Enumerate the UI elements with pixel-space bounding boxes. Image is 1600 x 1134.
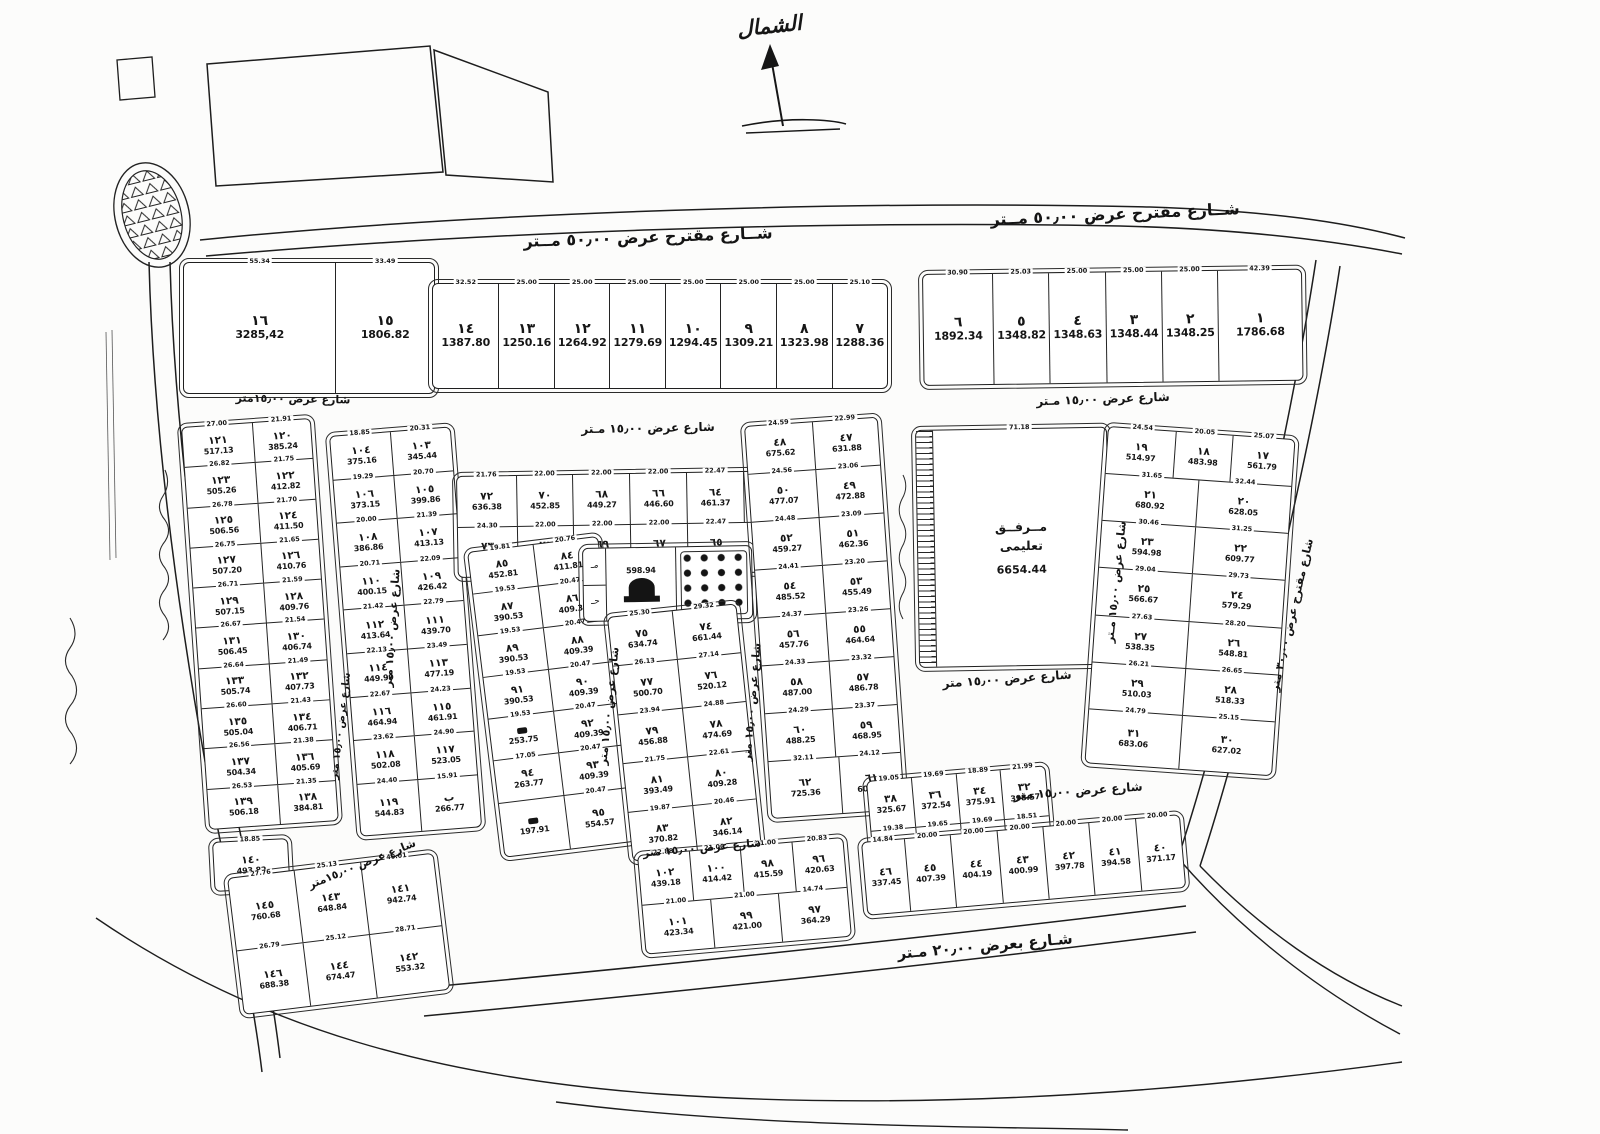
street-label: شارع عرض ١٥٫٠٠ متر [942, 668, 1072, 691]
plot-area: 1294.45 [669, 337, 718, 350]
plot-cell: 24.40١١٩544.83 [357, 780, 420, 836]
plot-number: ١ [1256, 312, 1265, 327]
plot-area: 364.29 [800, 914, 830, 926]
plot-area: 538.35 [1125, 641, 1155, 652]
dimension-label: 26.79 [257, 941, 282, 950]
dimension-label: 20.76 [552, 534, 577, 543]
street-label: شــارع مقترح عرض ٥٠٫٠٠ مــتر [523, 223, 773, 251]
scr-cell: مـحـ [583, 549, 606, 621]
dimension-label: 26.13 [632, 657, 657, 666]
dimension-label: 25.00 [681, 279, 706, 286]
plot-area: 384.81 [293, 802, 323, 813]
dimension-label: 20.70 [411, 467, 436, 475]
plot-cell: 25.00٨1323.98 [776, 284, 832, 388]
dimension-label: 21.76 [474, 471, 499, 478]
dimension-label: 20.00 [1053, 819, 1078, 828]
dimension-label: 26.82 [207, 460, 232, 468]
plot-cell: 21.00٩٩421.00 [710, 893, 783, 947]
dimension-label: 23.37 [852, 701, 877, 709]
plot-area: 1264.92 [558, 337, 607, 350]
dimension-label: 19.53 [503, 668, 528, 677]
plot-area: 411.50 [273, 521, 303, 532]
dimension-label: 19.38 [881, 823, 906, 832]
plot-cell: 26.79١٤٦688.38 [237, 944, 310, 1014]
plot-area: 409.39 [579, 769, 610, 782]
plot-number: ٢ [1186, 313, 1195, 328]
plot-area: 661.44 [692, 631, 722, 643]
dimension-label: 19.69 [921, 770, 946, 779]
plot-area: 544.83 [374, 808, 404, 819]
plot-area: 502.08 [371, 760, 401, 771]
street-label: شارع عرض ١٥٫٠٠ مـتر [581, 420, 715, 436]
dimension-label: 20.47 [568, 660, 593, 669]
plot-area: 510.03 [1121, 688, 1151, 699]
plot-area: 423.34 [664, 926, 694, 938]
plot-area: 373.15 [350, 499, 380, 510]
plot-cell: 19.05٣٨325.67 [867, 778, 915, 830]
plot-area: 505.74 [220, 686, 250, 697]
plot-area: 506.45 [218, 646, 248, 657]
plot-area: 506.18 [229, 807, 259, 818]
plot-area: 390.53 [503, 694, 534, 707]
street-label: شارع عرض ١٥٫٠٠متر [236, 391, 351, 406]
plot-cell: 21.35١٣٨384.81 [277, 781, 338, 824]
plot-area: 1323.98 [780, 337, 829, 350]
dimension-label: 20.31 [407, 424, 432, 432]
plot-number: ٨ [800, 322, 809, 337]
dimension-label: 33.49 [373, 258, 398, 265]
dimension-label: 19.65 [925, 819, 950, 828]
dimension-label: 18.89 [965, 766, 990, 775]
dimension-label: 18.51 [1014, 812, 1039, 821]
plot-area: 634.74 [628, 638, 658, 650]
plot-area: 375.16 [347, 456, 377, 467]
plot-number: ٢٢ [1234, 543, 1248, 555]
plot-number: ٢٤ [1230, 590, 1244, 602]
plot-area: 426.42 [417, 581, 447, 592]
plot-area: 394.58 [1101, 856, 1131, 868]
plot-area: 477.07 [769, 496, 799, 507]
block-cm: 25.30٧٥634.7429.32٧٤661.4426.13٧٧500.702… [607, 603, 762, 861]
mosque-area: 598.94 [626, 566, 656, 576]
plot-cell: 22.00٧٠452.85 [516, 475, 574, 525]
plot-area: 405.69 [290, 762, 320, 773]
dimension-label: 24.30 [475, 522, 500, 529]
plot-number: ٢٣ [1140, 537, 1154, 549]
plot-cell: 22.47٦٤461.37 [686, 472, 744, 522]
plot-cell: 14.74٩٧364.29 [778, 887, 851, 941]
plot-number: ٢٧ [1134, 631, 1148, 643]
dimension-label: 19.69 [970, 815, 995, 824]
dimension-label: 26.75 [213, 540, 238, 548]
plot-area: 457.76 [779, 639, 809, 650]
plot-cell: 26.53١٣٩506.18 [207, 785, 279, 829]
dimension-label: 25.30 [627, 608, 652, 617]
dimension-label: 20.47 [573, 702, 598, 711]
dimension-label: 24.40 [374, 776, 399, 784]
dimension-label: 22.47 [704, 518, 729, 525]
plot-area: 523.05 [431, 755, 461, 766]
plot-area: 400.15 [357, 586, 387, 597]
plot-number: ٥ [1017, 315, 1026, 330]
dimension-label: 23.20 [842, 558, 867, 566]
handwritten-mark: حـ [584, 584, 607, 621]
plot-number: ١٧ [1256, 450, 1270, 462]
plot-area: 452.85 [530, 501, 560, 511]
plot-area: 409.39 [563, 644, 594, 657]
plot-area: 409.39 [568, 686, 599, 699]
plot-area: 456.88 [638, 735, 668, 747]
plot-area: 631.88 [832, 443, 862, 454]
dimension-label: 22.79 [421, 598, 446, 606]
dimension-label: 25.10 [847, 279, 872, 286]
plot-cell: 20.00٤٢397.78 [1042, 823, 1095, 899]
dimension-label: 30.46 [1136, 519, 1161, 527]
dimension-label: 32.44 [1233, 478, 1258, 486]
plot-area: 1250.16 [502, 337, 551, 350]
plot-number: ب [443, 793, 454, 805]
mosque-icon [623, 577, 659, 602]
plot-area: 390.53 [493, 610, 524, 623]
dimension-label: 26.64 [221, 661, 246, 669]
plot-cell: 25.12١٤٤674.47 [302, 935, 376, 1005]
dimension-label: 20.00 [354, 516, 379, 524]
plot-area: 461.91 [428, 712, 458, 723]
plot-area: 399.86 [410, 494, 440, 505]
plot-area: 514.97 [1125, 452, 1155, 463]
dimension-label: 24.56 [769, 467, 794, 475]
block-rc: 24.59٤٨675.6222.99٤٧631.8824.56٥٠477.072… [744, 417, 905, 819]
dimension-label: 18.85 [237, 835, 262, 843]
plot-area: 390.53 [498, 652, 529, 665]
dimension-label: 26.65 [1220, 666, 1245, 674]
plot-cell: 33.49١٥1806.82 [335, 263, 434, 393]
block-lc: 27.00١٢١517.1321.91١٢٠385.2426.82١٢٣505.… [181, 418, 339, 830]
plot-area: 375.91 [965, 796, 995, 808]
plot-number: ٣ [1130, 313, 1139, 328]
dimension-label: 14.74 [800, 884, 825, 893]
plot-number: ٢١ [1144, 490, 1158, 502]
plot-number: ٢٩ [1131, 678, 1145, 690]
plot-area: 507.20 [212, 566, 242, 577]
plot-cell: 25.00٣1348.44 [1105, 272, 1163, 383]
plot-area: 397.78 [1054, 861, 1084, 873]
plot-area: 518.33 [1215, 695, 1245, 706]
plot-area: 472.88 [835, 491, 865, 502]
dimension-label: 23.32 [849, 653, 874, 661]
dimension-label: 25.12 [323, 933, 348, 942]
block-tl: 55.34١٦3285,4233.49١٥1806.82 [183, 262, 435, 394]
plot-number: ٤ [1073, 314, 1082, 329]
plot-number: ١٤ [457, 322, 474, 337]
dimension-label: 32.52 [453, 279, 478, 286]
plot-area: 439.70 [421, 625, 451, 636]
dimension-label: 28.20 [1223, 619, 1248, 627]
dimension-label: 22.00 [532, 470, 557, 477]
dimension-label: 24.79 [1123, 707, 1148, 715]
plot-area: 411.81 [553, 560, 584, 573]
dimension-label: 19.05 [876, 774, 901, 783]
dimension-label: 28.71 [393, 924, 418, 933]
dimension-label: 21.75 [642, 755, 667, 764]
plot-area: 609.77 [1225, 554, 1255, 565]
plot-area: 325.67 [876, 804, 906, 816]
parcel-blocks-layer: 55.34١٦3285,4233.49١٥1806.8232.52١٤1387.… [0, 0, 1600, 1134]
plot-area: 459.27 [772, 544, 802, 555]
dimension-label: 21.39 [414, 511, 439, 519]
plot-area: 412.82 [271, 481, 301, 492]
dimension-label: 20.00 [1100, 815, 1125, 824]
dimension-label: 23.09 [839, 510, 864, 518]
dimension-label: 26.67 [218, 621, 243, 629]
plot-number: ١١ [629, 322, 646, 337]
dimension-label: 27.76 [248, 868, 273, 877]
utility-icon [528, 817, 539, 824]
dimension-label: 22.61 [706, 748, 731, 757]
plot-area: 505.04 [223, 726, 253, 737]
plot-cell: 20.05١٨483.98 [1173, 432, 1232, 482]
plot-area: 386.86 [354, 543, 384, 554]
plot-area: 409.76 [279, 601, 309, 612]
dimension-label: 25.00 [1121, 267, 1146, 274]
plot-cell: 24.79٣١683.06 [1085, 709, 1181, 768]
plot-area: 500.70 [633, 687, 663, 699]
plot-area: 346.14 [712, 826, 742, 838]
plot-number: ٧ [856, 322, 865, 337]
dimension-label: 21.91 [269, 415, 294, 423]
plot-area: 455.49 [842, 587, 872, 598]
street-label: شـارع بعرض ٢٠٫٠٠ مـتر [897, 929, 1074, 962]
plot-number: ٩ [744, 322, 753, 337]
plot-number: ١٩ [1135, 442, 1149, 454]
plot-area: 461.37 [701, 498, 731, 508]
dimension-label: 24.12 [857, 749, 882, 757]
dimension-label: 22.67 [368, 689, 393, 697]
dimension-label: 20.00 [1145, 811, 1170, 820]
dimension-label: 19.53 [498, 626, 523, 635]
plot-area: 3285,42 [235, 329, 284, 342]
plot-area: 1348.25 [1166, 327, 1215, 340]
plot-area: 725.36 [791, 787, 821, 798]
plot-cell: 28.71١٤٢553.32 [369, 926, 449, 997]
dimension-label: 20.05 [1192, 428, 1217, 436]
dimension-label: 55.34 [247, 258, 272, 265]
plot-cell: 20.00٤٥407.39 [904, 835, 957, 911]
dimension-label: 24.88 [701, 699, 726, 708]
plot-cell: 42.39١1786.68 [1217, 270, 1302, 381]
plot-area: 579.29 [1221, 601, 1251, 612]
plot-area: 477.19 [424, 668, 454, 679]
plot-area: 1348.44 [1110, 328, 1159, 341]
plot-area: 506.56 [209, 525, 239, 536]
plot-number: ٦ [954, 316, 963, 331]
dimension-label: 21.35 [294, 777, 319, 785]
plot-area: 554.57 [585, 817, 616, 830]
plot-cell: 25.00١٢1264.92 [554, 284, 610, 388]
plot-area: 628.05 [1228, 507, 1258, 518]
education-facility-label: مــرفــق [995, 517, 1047, 537]
plot-area: 636.38 [472, 502, 502, 512]
plot-cell: 30.90٦1892.34 [923, 274, 994, 385]
plot-area: 483.98 [1188, 457, 1218, 468]
plot-cell: 25.00١٠1294.45 [665, 284, 721, 388]
plot-number: ١٠ [685, 322, 702, 337]
plot-number: ٢٦ [1227, 637, 1241, 649]
dimension-label: 25.00 [514, 279, 539, 286]
plot-area: 372.54 [921, 800, 951, 812]
plot-cell: 25.00٤1348.63 [1048, 272, 1106, 383]
dimension-label: 26.53 [230, 781, 255, 789]
plot-area: 337.45 [871, 877, 901, 889]
dimension-label: 21.38 [291, 737, 316, 745]
dimension-label: 15.91 [435, 772, 460, 780]
plot-cell: 25.00٢1348.25 [1161, 271, 1219, 382]
plot-area: 263.77 [514, 777, 545, 790]
dimension-label: 71.18 [1007, 424, 1032, 431]
dimension-label: 23.62 [371, 733, 396, 741]
plot-area: 683.06 [1118, 739, 1148, 750]
dimension-label: 22.00 [590, 520, 615, 527]
plot-area: 449.27 [587, 500, 617, 510]
dimension-label: 26.21 [1126, 660, 1151, 668]
dimension-label: 22.00 [589, 469, 614, 476]
plot-area: 520.12 [697, 680, 727, 692]
plot-area: 487.00 [782, 687, 812, 698]
plot-area: 1279.69 [613, 337, 662, 350]
plot-cell: 27.76١٤٥760.68 [228, 871, 302, 951]
dimension-label: 22.09 [418, 554, 443, 562]
dimension-label: 21.65 [277, 536, 302, 544]
plot-area: 627.02 [1211, 745, 1241, 756]
dimension-label: 21.59 [280, 576, 305, 584]
plot-area: 404.19 [962, 869, 992, 881]
dimension-label: 26.60 [224, 701, 249, 709]
plot-area: 485.52 [775, 591, 805, 602]
plot-area: 420.63 [805, 864, 835, 876]
dimension-label: 21.00 [732, 890, 757, 899]
dimension-label: 24.29 [786, 706, 811, 714]
plot-area: 474.69 [702, 729, 732, 741]
plot-area: 1348.82 [997, 329, 1046, 342]
plot-area: 452.81 [488, 568, 519, 581]
plot-area: 1309.21 [724, 337, 773, 350]
plot-cell: 22.00٦٦446.60 [629, 473, 687, 523]
plot-area: 507.15 [215, 606, 245, 617]
dimension-label: 23.26 [846, 605, 871, 613]
dimension-label: 24.59 [766, 419, 791, 427]
plot-number: ٢٨ [1224, 685, 1238, 697]
plot-area: 414.42 [702, 873, 732, 885]
dimension-label: 32.11 [791, 753, 816, 761]
dimension-label: 24.41 [776, 562, 801, 570]
dimension-label: 31.25 [1229, 525, 1254, 533]
plot-cell: 20.00٤٠371.17 [1135, 815, 1185, 891]
dimension-label: 20.00 [1007, 823, 1032, 832]
dimension-label: 26.78 [210, 500, 235, 508]
plot-number: ٣١ [1127, 728, 1141, 740]
dimension-label: 30.90 [945, 269, 970, 276]
plot-number: ٣٠ [1220, 735, 1234, 747]
plot-area: 410.76 [276, 561, 306, 572]
plot-area: 393.49 [643, 784, 673, 796]
dimension-label: 21.99 [1010, 762, 1035, 771]
plot-area: 1288.36 [835, 337, 884, 350]
dimension-label: 18.85 [347, 429, 372, 437]
dimension-label: 19.29 [351, 472, 376, 480]
plot-area: 486.78 [848, 682, 878, 693]
plot-area: 406.71 [288, 722, 318, 733]
street-label: شــارع مقترح عرض ٥٠٫٠٠ مــتر [990, 199, 1240, 229]
dimension-label: 22.00 [646, 468, 671, 475]
dimension-label: 25.00 [570, 279, 595, 286]
plot-area: 413.13 [414, 538, 444, 549]
plot-area: 407.39 [916, 873, 946, 885]
dimension-label: 26.71 [216, 580, 241, 588]
plot-area: 197.91 [519, 824, 550, 837]
dimension-label: 22.00 [647, 519, 672, 526]
plot-number: ٢٠ [1237, 496, 1251, 508]
mark-cell: 197.91 [499, 796, 570, 857]
plot-area: 464.64 [845, 635, 875, 646]
dimension-label: 25.00 [792, 279, 817, 286]
dimension-label: 31.65 [1139, 471, 1164, 479]
plot-number: ٦٨ [595, 489, 608, 500]
plot-area: 566.67 [1128, 594, 1158, 605]
plot-cell: 25.00١١1279.69 [609, 284, 665, 388]
dimension-label: 25.00 [1177, 266, 1202, 273]
plot-cell: 25.15٣٠627.02 [1178, 716, 1275, 775]
plot-number: ٦٤ [709, 487, 722, 498]
dimension-label: 24.33 [783, 658, 808, 666]
dimension-label: 22.00 [533, 521, 558, 528]
plot-number: ٢٥ [1137, 584, 1151, 596]
dimension-label: 17.05 [513, 751, 538, 760]
plot-cell: 25.00٩1309.21 [720, 284, 776, 388]
plot-area: 415.59 [753, 868, 783, 880]
plot-cell: 21.00١٠١423.34 [642, 899, 714, 953]
plot-cell: 15.91ب266.77 [417, 775, 481, 831]
plot-area: 266.77 [435, 803, 465, 814]
plot-area: 1348.63 [1053, 329, 1102, 342]
plot-area: 517.13 [204, 445, 234, 456]
dimension-label: 21.75 [271, 455, 296, 463]
dimension-label: 20.71 [357, 559, 382, 567]
dimension-label: 23.49 [425, 641, 450, 649]
plot-number: ١٥ [377, 314, 394, 329]
plot-cell: 20.00٤٣400.99 [996, 827, 1049, 903]
dimension-label: 19.53 [508, 710, 533, 719]
plot-area: 468.95 [852, 730, 882, 741]
dimension-label: 20.46 [712, 796, 737, 805]
dimension-label: 42.39 [1247, 265, 1272, 272]
plot-area: 680.92 [1135, 500, 1165, 511]
dimension-label: 20.47 [583, 785, 608, 794]
dimension-label: 25.15 [1216, 713, 1241, 721]
dimension-label: 27.14 [696, 650, 721, 659]
plot-cell: 20.00٤١394.58 [1089, 819, 1142, 895]
plot-area: 371.17 [1146, 853, 1176, 865]
plot-area: 446.60 [644, 499, 674, 509]
dimension-label: 19.81 [487, 542, 512, 551]
dimension-label: 21.43 [288, 697, 313, 705]
plot-cell: 17.05٩٤263.77 [494, 754, 563, 803]
plot-area: 385.24 [268, 440, 298, 451]
dimension-label: 21.54 [283, 616, 308, 624]
plot-number: ١٨ [1197, 446, 1211, 458]
dimension-label: 24.37 [779, 610, 804, 618]
plot-number: ١٦ [251, 314, 268, 329]
dimension-label: 20.47 [557, 576, 582, 585]
